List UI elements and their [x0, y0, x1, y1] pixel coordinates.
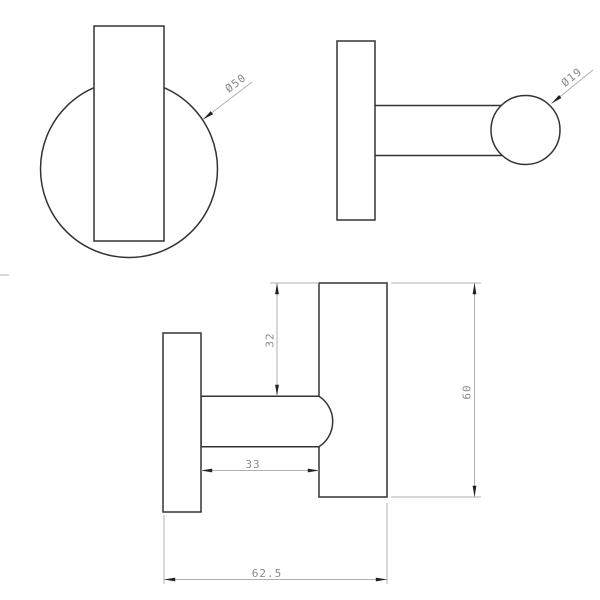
dim-label-62: 62.5: [252, 567, 283, 580]
dim-ball-diameter: Ø19: [552, 65, 594, 103]
arm-outline: [201, 396, 333, 446]
dim-plate-diameter: Ø50: [203, 71, 252, 119]
technical-drawing-canvas: Ø50 Ø19 32 33 60: [0, 0, 600, 600]
bar-front-outline: [94, 26, 164, 241]
side-view: [337, 41, 560, 220]
dim-total-depth: 62.5: [164, 503, 387, 584]
bar-side-outline: [319, 283, 387, 497]
dim-label-d19: Ø19: [559, 65, 585, 89]
dim-label-d50: Ø50: [223, 71, 249, 95]
front-view: [41, 26, 218, 258]
dim-label-33: 33: [245, 458, 260, 471]
dim-label-60: 60: [461, 384, 474, 399]
dim-ball-center-offset: 32: [264, 283, 320, 396]
hook-technical-drawing: Ø50 Ø19 32 33 60: [0, 0, 600, 600]
bottom-view: [163, 283, 387, 512]
dim-bar-height: 60: [391, 283, 481, 497]
plate-edge-outline: [163, 333, 201, 512]
dim-label-32: 32: [264, 332, 277, 347]
plate-side-outline: [337, 41, 375, 220]
ball-outline: [491, 96, 560, 165]
dim-arm-length: 33: [201, 458, 319, 471]
